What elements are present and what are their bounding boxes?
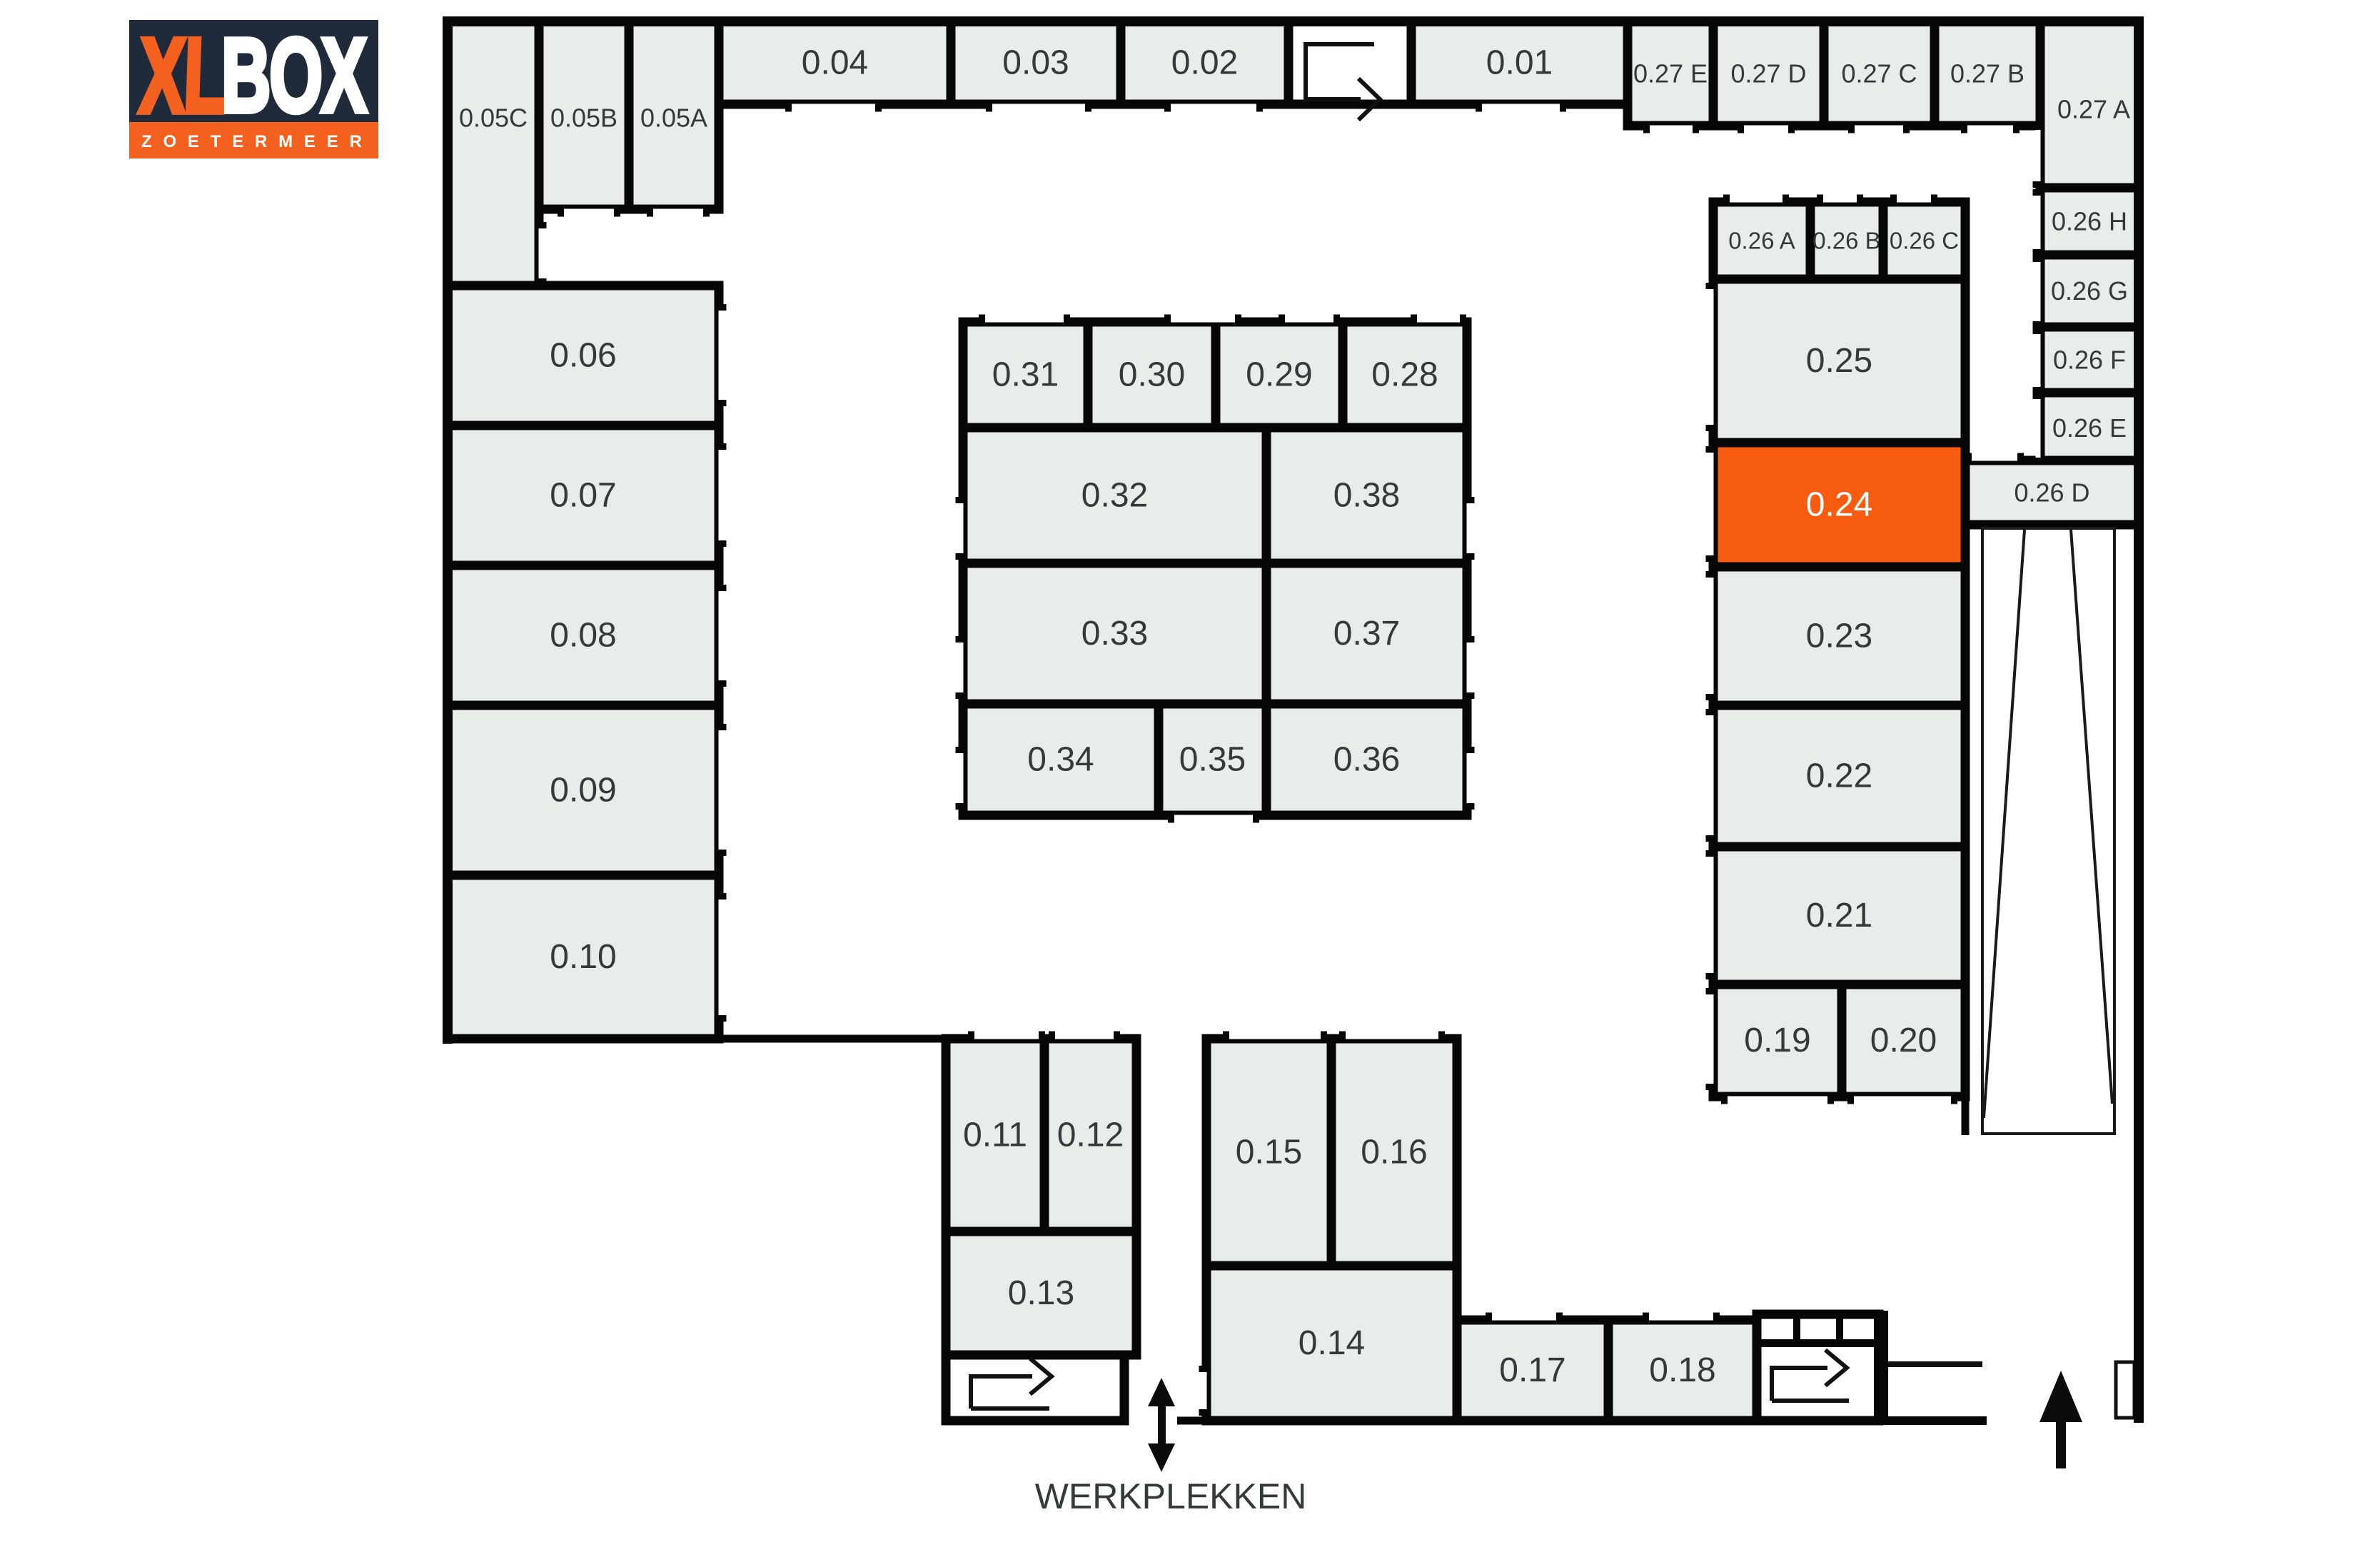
- svg-text:0.09: 0.09: [550, 772, 616, 810]
- svg-text:0.10: 0.10: [550, 938, 616, 976]
- svg-text:0.26 D: 0.26 D: [2014, 478, 2089, 508]
- svg-text:0.18: 0.18: [1649, 1351, 1715, 1389]
- svg-text:0.27 C: 0.27 C: [1841, 59, 1917, 89]
- svg-text:0.14: 0.14: [1299, 1324, 1365, 1362]
- svg-text:0.36: 0.36: [1333, 741, 1400, 779]
- svg-text:0.06: 0.06: [550, 337, 616, 375]
- svg-text:0.25: 0.25: [1806, 342, 1872, 380]
- svg-text:0.26 C: 0.26 C: [1890, 228, 1959, 254]
- svg-text:0.19: 0.19: [1744, 1022, 1810, 1059]
- svg-text:0.26 G: 0.26 G: [2051, 276, 2128, 306]
- svg-text:0.22: 0.22: [1806, 757, 1872, 795]
- svg-text:0.17: 0.17: [1499, 1351, 1565, 1389]
- svg-text:0.04: 0.04: [802, 44, 868, 82]
- svg-text:0.27 A: 0.27 A: [2057, 95, 2130, 124]
- svg-text:0.31: 0.31: [992, 356, 1059, 394]
- svg-text:0.05C: 0.05C: [459, 104, 528, 133]
- svg-text:0.34: 0.34: [1027, 741, 1094, 779]
- svg-text:ZOETERMEER: ZOETERMEER: [141, 132, 373, 151]
- svg-text:0.26 A: 0.26 A: [1728, 228, 1795, 254]
- svg-text:0.20: 0.20: [1870, 1022, 1937, 1059]
- svg-text:0.33: 0.33: [1081, 615, 1148, 652]
- svg-text:0.35: 0.35: [1179, 741, 1246, 779]
- svg-text:0.38: 0.38: [1333, 477, 1400, 515]
- svg-text:BOX: BOX: [221, 18, 366, 134]
- svg-text:0.05A: 0.05A: [640, 104, 707, 133]
- svg-text:0.24: 0.24: [1806, 486, 1872, 524]
- svg-text:0.27 D: 0.27 D: [1730, 59, 1806, 89]
- svg-text:0.15: 0.15: [1236, 1134, 1302, 1171]
- svg-text:0.01: 0.01: [1486, 44, 1553, 82]
- svg-text:0.02: 0.02: [1171, 44, 1238, 82]
- svg-text:0.26 F: 0.26 F: [2053, 346, 2126, 375]
- svg-text:0.27 B: 0.27 B: [1950, 59, 2024, 89]
- svg-text:0.28: 0.28: [1371, 356, 1438, 394]
- svg-text:0.29: 0.29: [1246, 356, 1312, 394]
- svg-text:0.21: 0.21: [1806, 897, 1872, 934]
- svg-text:WERKPLEKKEN: WERKPLEKKEN: [1035, 1476, 1307, 1516]
- svg-text:0.11: 0.11: [963, 1117, 1027, 1154]
- svg-text:0.08: 0.08: [550, 617, 616, 655]
- svg-text:0.26 H: 0.26 H: [2052, 207, 2127, 236]
- svg-text:0.37: 0.37: [1333, 615, 1400, 652]
- svg-text:0.26 E: 0.26 E: [2052, 413, 2127, 443]
- svg-text:0.26 B: 0.26 B: [1812, 228, 1880, 254]
- svg-text:0.16: 0.16: [1361, 1134, 1427, 1171]
- svg-text:0.05B: 0.05B: [550, 104, 617, 133]
- svg-text:0.23: 0.23: [1806, 618, 1872, 655]
- svg-text:0.27 E: 0.27 E: [1633, 59, 1708, 89]
- svg-text:0.30: 0.30: [1119, 356, 1185, 394]
- svg-text:0.32: 0.32: [1081, 477, 1148, 515]
- svg-text:0.12: 0.12: [1057, 1117, 1124, 1154]
- svg-text:0.13: 0.13: [1008, 1274, 1074, 1312]
- svg-text:XL: XL: [138, 16, 226, 135]
- svg-text:0.07: 0.07: [550, 477, 616, 515]
- svg-text:0.03: 0.03: [1002, 44, 1069, 82]
